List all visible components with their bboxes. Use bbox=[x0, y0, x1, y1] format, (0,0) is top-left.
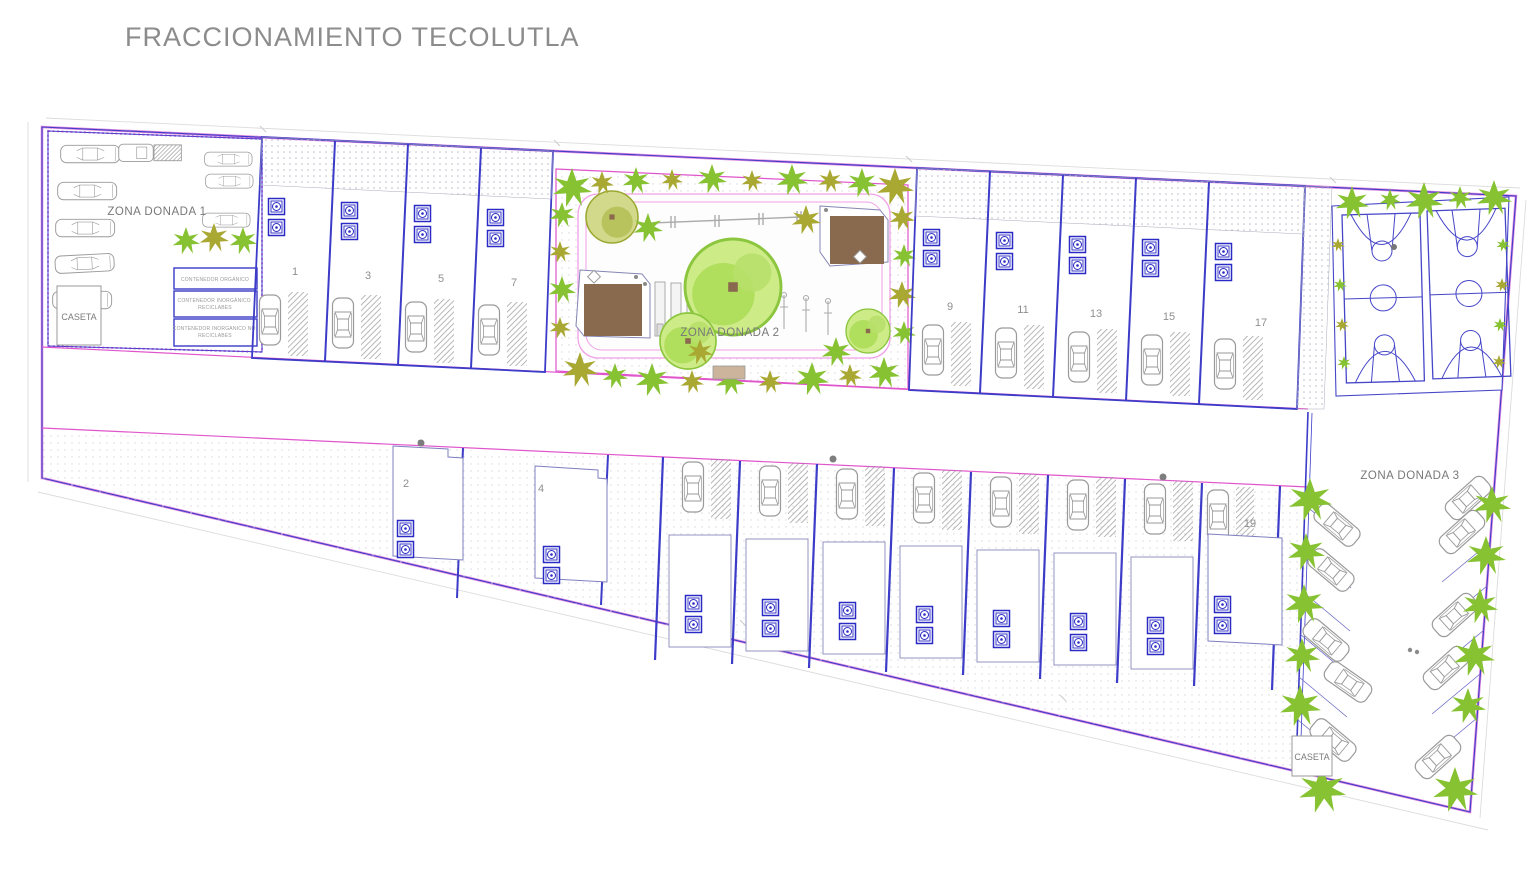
bench-icon bbox=[713, 366, 745, 379]
car-icon bbox=[206, 174, 254, 188]
site-plan-canvas: FRACCIONAMIENTO TECOLUTLA bbox=[0, 0, 1535, 881]
driveway-car-icon bbox=[1069, 329, 1118, 393]
motorcycle-icon bbox=[1408, 648, 1419, 654]
driveway-car-icon bbox=[991, 477, 1012, 527]
driveway-car-icon bbox=[760, 466, 781, 516]
zona-donada-2-park: ZONA DONADA 2 bbox=[549, 164, 916, 396]
house-footprint bbox=[535, 466, 607, 582]
lot-number: 2 bbox=[403, 478, 409, 490]
palapa-icon bbox=[576, 270, 650, 338]
tree-icon bbox=[586, 191, 638, 243]
driveway-car-icon bbox=[837, 469, 858, 519]
street-tree-icon bbox=[830, 456, 837, 463]
lot-number: 1 bbox=[292, 266, 298, 278]
trash-bin-icon bbox=[1391, 244, 1397, 250]
lot-number: 15 bbox=[1163, 311, 1175, 323]
street-tree-icon bbox=[418, 440, 425, 447]
zona-donada-1-block: ZONA DONADA 1 CASETA CONTENEDOR ORGÁNICO… bbox=[48, 131, 262, 352]
car-icon bbox=[203, 213, 251, 227]
car-icon bbox=[55, 253, 115, 273]
street-tree-icon bbox=[1160, 474, 1167, 481]
lot-number: 3 bbox=[365, 270, 371, 282]
top-lot-block-west: 1 3 5 7 bbox=[252, 137, 553, 372]
guard-booth-left-label: CASETA bbox=[61, 312, 96, 322]
driveway-car-icon bbox=[1215, 336, 1264, 400]
lot-number: 19 bbox=[1244, 518, 1256, 530]
tree-icon bbox=[660, 313, 716, 369]
lot-number: 9 bbox=[947, 301, 953, 313]
lot-number: 7 bbox=[511, 277, 517, 289]
waste-containers: CONTENEDOR ORGÁNICO CONTENEDOR INORGÁNIC… bbox=[173, 268, 257, 346]
utility-boxes-icon bbox=[924, 230, 940, 267]
driveway-car-icon bbox=[923, 322, 972, 386]
driveway-car-icon bbox=[914, 473, 935, 523]
utility-boxes-icon bbox=[1143, 240, 1159, 277]
car-icon bbox=[61, 145, 120, 162]
driveway-car-icon bbox=[406, 299, 455, 363]
driveway-car-icon bbox=[479, 302, 528, 366]
tree-icon bbox=[846, 309, 890, 353]
car-icon bbox=[205, 152, 253, 166]
car-icon bbox=[1321, 659, 1374, 705]
utility-boxes-icon bbox=[997, 233, 1013, 270]
driveway-car-icon bbox=[1142, 332, 1191, 396]
zona-donada-3-block: ZONA DONADA 3 bbox=[1280, 412, 1511, 813]
zona-donada-2-label: ZONA DONADA 2 bbox=[680, 327, 779, 339]
basketball-courts-block bbox=[1331, 180, 1512, 396]
lot-number: 5 bbox=[438, 273, 444, 285]
driveway-car-icon bbox=[1068, 480, 1089, 530]
driveway-car-icon bbox=[683, 462, 704, 512]
car-icon bbox=[1429, 590, 1480, 639]
backyard-strip bbox=[915, 168, 1305, 234]
pickup-truck-icon bbox=[119, 144, 182, 161]
lot-number: 11 bbox=[1017, 304, 1028, 316]
driveway-car-icon bbox=[996, 325, 1045, 389]
guard-booth-right-label: CASETA bbox=[1294, 752, 1329, 762]
lot-number: 13 bbox=[1090, 308, 1102, 320]
utility-boxes-icon bbox=[1216, 244, 1232, 281]
palapa-icon bbox=[820, 206, 888, 266]
driveway-car-icon bbox=[1208, 490, 1229, 540]
lot-number: 17 bbox=[1255, 317, 1267, 329]
utility-boxes-icon bbox=[269, 199, 285, 236]
zona-donada-3-label: ZONA DONADA 3 bbox=[1360, 470, 1459, 482]
driveway-car-icon bbox=[333, 295, 382, 359]
utility-boxes-icon bbox=[415, 206, 431, 243]
utility-boxes-icon bbox=[342, 203, 358, 240]
palapa-roof bbox=[584, 284, 642, 336]
palm-icon bbox=[1451, 688, 1486, 723]
car-icon bbox=[58, 182, 117, 199]
lot-number: 4 bbox=[538, 483, 544, 495]
utility-boxes-icon bbox=[488, 210, 504, 247]
car-icon bbox=[56, 219, 115, 236]
site-plan-drawing: ZONA DONADA 1 CASETA CONTENEDOR ORGÁNICO… bbox=[0, 0, 1535, 881]
zona-donada-1-label: ZONA DONADA 1 bbox=[107, 206, 206, 218]
driveway-car-icon bbox=[260, 292, 309, 356]
container-organic-label: CONTENEDOR ORGÁNICO bbox=[181, 276, 249, 283]
driveway-car-icon bbox=[1145, 484, 1166, 534]
top-lot-block-east: 9 11 13 15 17 bbox=[909, 168, 1332, 409]
utility-boxes-icon bbox=[1070, 237, 1086, 274]
